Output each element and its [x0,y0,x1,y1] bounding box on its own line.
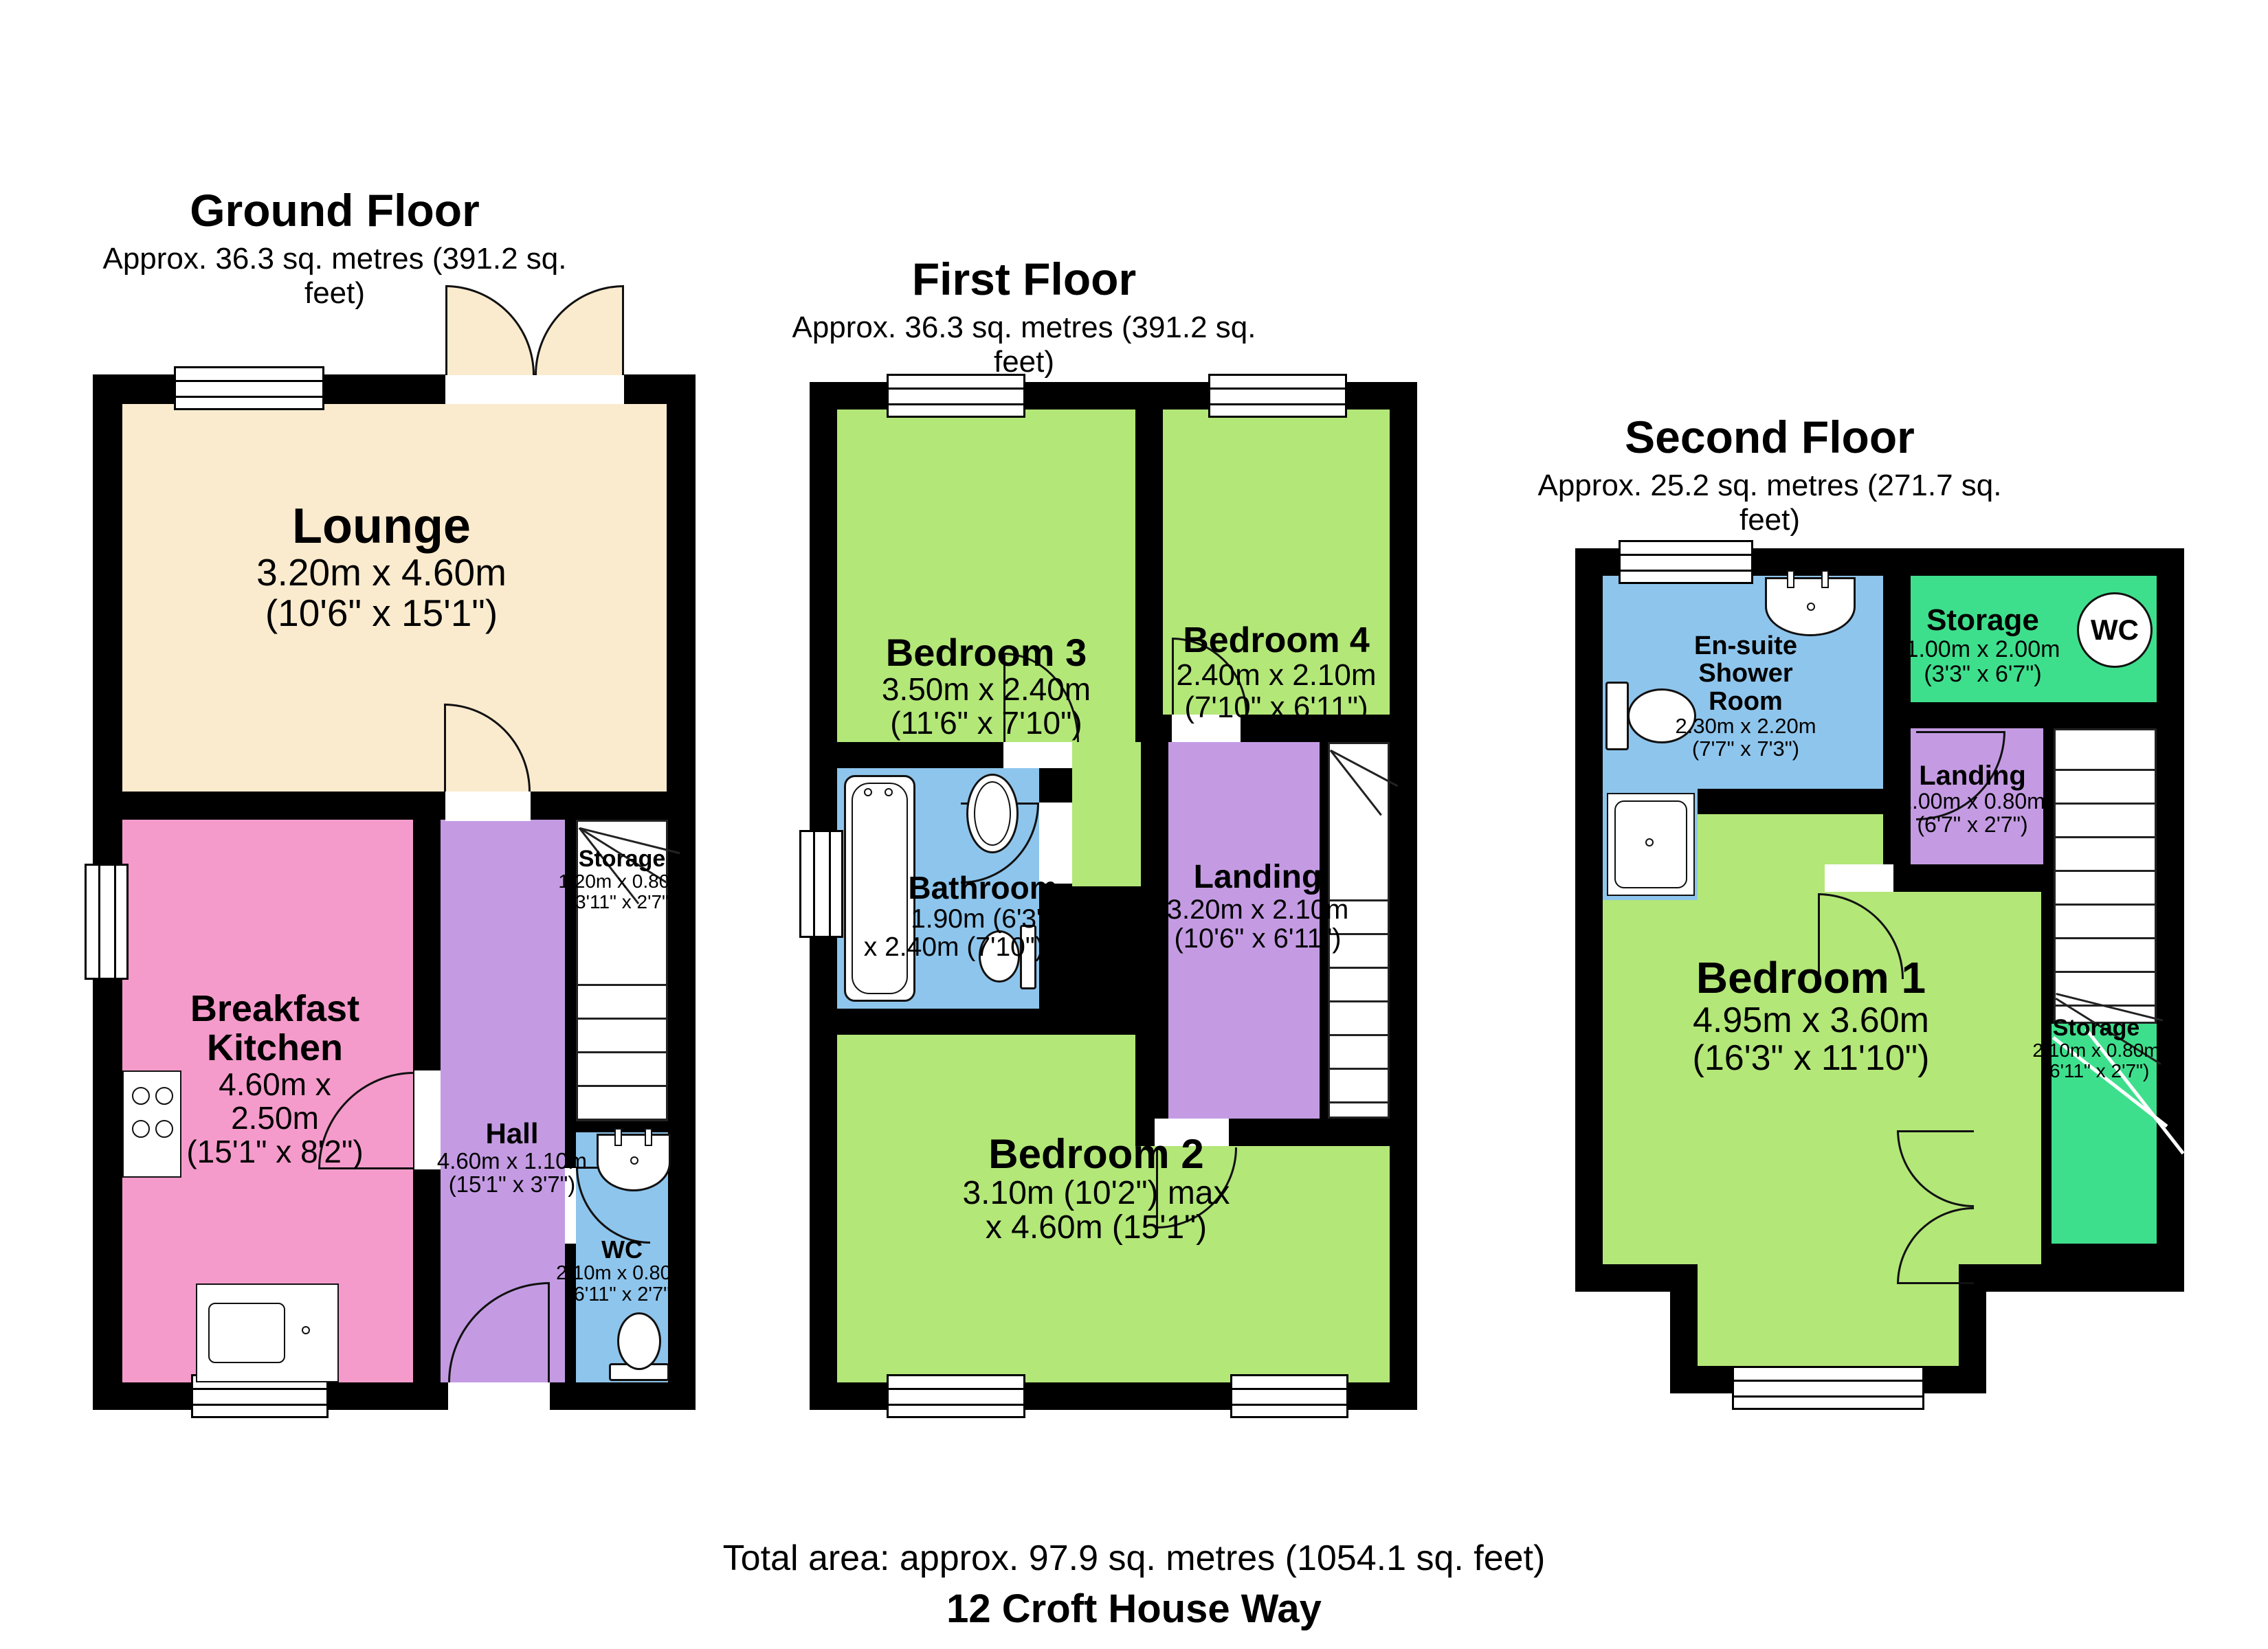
stair-treads [2056,737,2155,1022]
sink-symbol [196,1283,339,1382]
second-floor-title: Second Floor [1509,411,2031,463]
bedroom3-room-leg [1072,742,1141,886]
bedroom3-room [837,410,1135,742]
french-door-opening [445,374,624,404]
hob-burner-icon [132,1087,150,1105]
stair-winder-line [1331,750,1399,787]
sink-faucet-icon [302,1326,310,1334]
first-floor-stairs [1328,742,1390,1119]
stair-winder-line [579,827,640,904]
bath-tap-icon [885,788,893,796]
tap-icon [645,1128,652,1146]
hall-lounge-door-opening [445,792,531,821]
bedroom2-window-right [1230,1374,1348,1418]
ground-floor-subtitle: Approx. 36.3 sq. metres (391.2 sq. feet) [74,242,596,311]
first-floor-subtitle: Approx. 36.3 sq. metres (391.2 sq. feet) [763,311,1285,379]
basin-inner-icon [974,781,1011,846]
stair-winder-line [1330,750,1382,816]
sink-bowl-icon [208,1303,285,1363]
basin-symbol [597,1134,671,1191]
bedroom4-window [1208,374,1347,418]
address-text: 12 Croft House Way [447,1586,1821,1632]
wc-circle: WC [2077,592,2153,668]
bedroom4-door-opening [1172,715,1241,742]
toilet-symbol [1627,688,1696,743]
basin-drain-icon [1807,603,1815,611]
stair-winder-line [579,827,667,884]
bath-tap-icon [864,788,872,796]
basin-symbol [1765,577,1856,636]
stair-treads [578,952,666,1119]
tap-icon [1821,570,1829,588]
basin-symbol [966,774,1019,853]
stair-treads [1330,868,1388,1117]
front-door-opening [448,1382,550,1412]
shower-drain-icon [1645,838,1654,846]
toilet-tank-icon [1020,925,1036,989]
second-floor-stairs [2054,728,2157,1024]
bathtub-symbol [844,775,915,1002]
storage-room-bottom [2052,1024,2157,1244]
hob-burner-icon [155,1087,173,1105]
bedroom3-door-opening [1003,742,1072,768]
toilet-tank-icon [1605,682,1629,750]
bathtub-inner-icon [852,783,908,994]
bedroom1-door-opening [1825,864,1893,892]
hob-burner-icon [132,1120,150,1138]
toilet-symbol [979,930,1020,983]
bedroom2-room-lower [837,1146,1390,1382]
bathroom-window [799,830,843,938]
lounge-room [122,404,667,792]
tap-icon [1787,570,1794,588]
total-area-text: Total area: approx. 97.9 sq. metres (105… [447,1538,1821,1579]
bedroom2-door-opening [1155,1119,1229,1146]
bedroom2-window-left [887,1374,1025,1418]
lounge-window [174,366,324,410]
stair-winder-line [579,827,680,854]
hob-burner-icon [155,1120,173,1138]
toilet-symbol [617,1312,661,1370]
ensuite-window [1619,540,1753,584]
ground-floor-stairs [576,820,668,1121]
landing-left-wall [1883,702,1911,892]
floorplan-page: Ground Floor Approx. 36.3 sq. metres (39… [0,0,2268,1649]
wc-door-opening [565,1168,576,1244]
second-floor-subtitle: Approx. 25.2 sq. metres (271.7 sq. feet) [1509,469,2031,537]
first-floor-title: First Floor [763,253,1285,305]
kitchen-window [85,864,129,980]
shower-symbol [1607,793,1695,896]
wc-circle-label: WC [2091,614,2139,647]
tap-icon [614,1128,622,1146]
ground-floor-title: Ground Floor [74,184,596,236]
kitchen-door-opening [414,1070,441,1169]
hob-symbol [122,1070,181,1178]
basin-drain-icon [630,1156,638,1165]
bedroom3-window [887,374,1025,418]
landing-bottom-wall [1883,864,2055,892]
bedroom1-window [1732,1366,1924,1410]
landing-room-first [1168,742,1320,1119]
bathroom-door-opening [1039,803,1072,884]
